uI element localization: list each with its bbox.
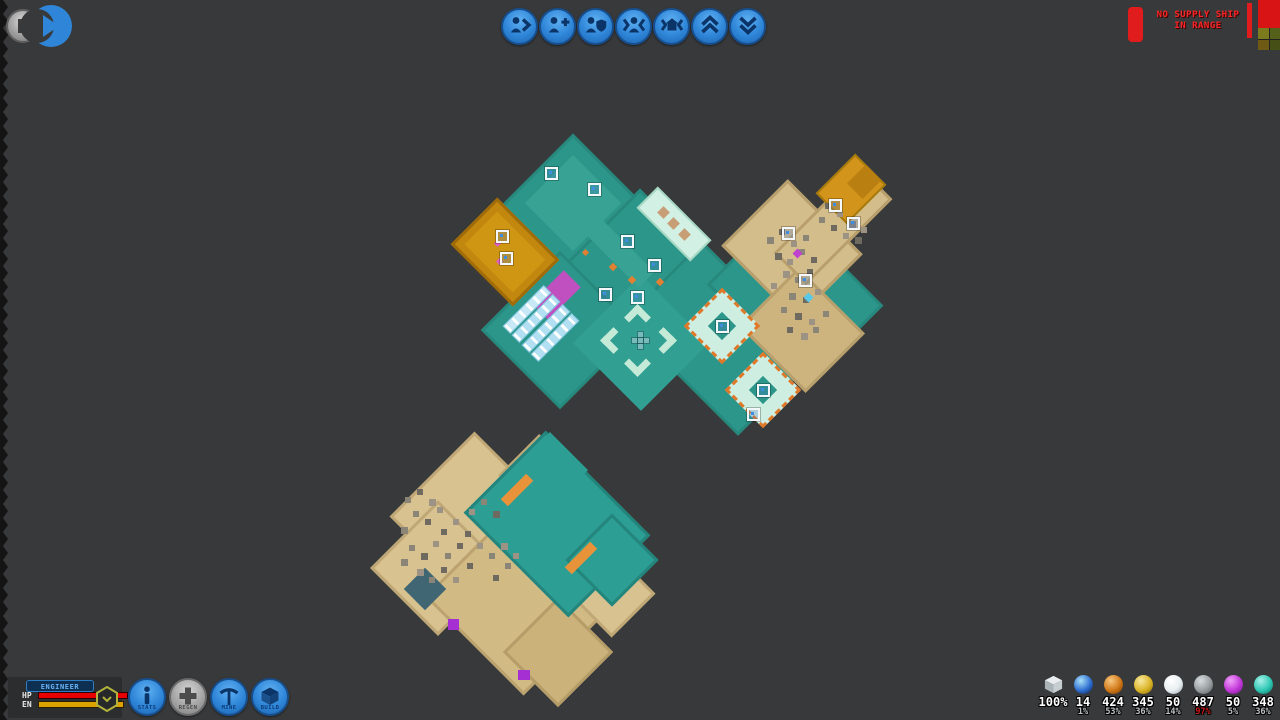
orb-icon	[1254, 675, 1273, 694]
resource-item[interactable]: 48797%	[1188, 674, 1218, 717]
rock-speckle	[437, 507, 443, 513]
resource-item[interactable]: 42453%	[1098, 674, 1128, 717]
layer-down-button[interactable]	[729, 8, 766, 45]
rock-speckle	[401, 559, 408, 566]
rock-speckle	[787, 327, 793, 333]
mine-button[interactable]: MINE	[210, 678, 248, 716]
orb-icon	[1074, 675, 1093, 694]
action-button-label: REGEN	[171, 705, 205, 711]
game-screen: NO SUPPLY SHIP IN RANGE ENGINEER HP EN S…	[0, 0, 1280, 720]
rock-speckle	[433, 541, 439, 547]
action-button-label: MINE	[212, 705, 246, 711]
guard-unit-button[interactable]	[577, 8, 614, 45]
action-button-label: STATS	[130, 705, 164, 711]
resource-percent: 36%	[1135, 708, 1150, 717]
resource-percent: 53%	[1105, 708, 1120, 717]
rock-speckle	[781, 307, 787, 313]
rock-speckle	[819, 217, 825, 223]
rock-speckle	[409, 545, 415, 551]
map-item-marker[interactable]	[500, 252, 513, 265]
rock-speckle	[501, 543, 508, 550]
rock-speckle	[467, 563, 473, 569]
rock-speckle	[425, 519, 431, 525]
rock-speckle	[465, 531, 471, 537]
hp-label: HP	[22, 692, 32, 700]
resource-item[interactable]: 34536%	[1128, 674, 1158, 717]
map-item-marker[interactable]	[782, 227, 795, 240]
resource-percent: 97%	[1195, 708, 1210, 717]
focus-home-button[interactable]	[653, 8, 690, 45]
map-cursor	[644, 338, 649, 343]
rock-speckle	[513, 553, 519, 559]
resource-percent: 36%	[1255, 708, 1270, 717]
next-unit-button[interactable]	[501, 8, 538, 45]
orb-icon	[1224, 675, 1243, 694]
world-map[interactable]	[0, 0, 1280, 720]
rock-speckle	[493, 511, 500, 518]
focus-unit-button[interactable]	[615, 8, 652, 45]
rock-speckle	[477, 543, 483, 549]
rock-speckle	[489, 553, 495, 559]
add-unit-button[interactable]	[539, 8, 576, 45]
rock-speckle	[429, 499, 436, 506]
rock-speckle	[815, 289, 821, 295]
rock-speckle	[413, 511, 419, 517]
corner-gauge-grid	[1258, 28, 1280, 50]
map-item-marker[interactable]	[747, 408, 760, 421]
map-item-marker[interactable]	[588, 183, 601, 196]
rock-speckle	[795, 313, 802, 320]
rock-speckle	[809, 319, 815, 325]
map-item-marker[interactable]	[716, 320, 729, 333]
map-cursor	[632, 338, 637, 343]
map-item-marker[interactable]	[799, 274, 812, 287]
rock-speckle	[401, 527, 408, 534]
rock-speckle	[481, 499, 487, 505]
rock-speckle	[417, 569, 424, 576]
resource-item[interactable]: 505%	[1218, 674, 1248, 717]
rock-speckle	[803, 235, 809, 241]
warning-line2: IN RANGE	[1146, 21, 1250, 32]
stats-button[interactable]: STATS	[128, 678, 166, 716]
en-label: EN	[22, 701, 32, 709]
resource-bar: 100%141%42453%34536%5014%48797%505%34836…	[1038, 674, 1278, 717]
map-item-marker[interactable]	[829, 199, 842, 212]
warning-line1: NO SUPPLY SHIP	[1146, 10, 1250, 21]
map-item-marker[interactable]	[545, 167, 558, 180]
map-item-marker[interactable]	[757, 384, 770, 397]
rock-speckle	[831, 225, 837, 231]
rock-speckle	[453, 519, 459, 525]
map-item-marker[interactable]	[847, 217, 860, 230]
map-item-marker[interactable]	[496, 230, 509, 243]
map-structure	[448, 619, 459, 630]
rock-speckle	[811, 257, 817, 263]
rock-speckle	[767, 237, 774, 244]
rock-speckle	[823, 311, 829, 317]
screen-edge-decoration	[0, 0, 10, 720]
supply-warning: NO SUPPLY SHIP IN RANGE	[1146, 10, 1250, 32]
resource-percent: 14%	[1165, 708, 1180, 717]
resource-percent: 1%	[1078, 708, 1088, 717]
action-button-bar: STATSREGENMINEBUILD	[128, 678, 289, 716]
rock-speckle	[441, 529, 447, 535]
rock-speckle	[445, 553, 451, 559]
orb-icon	[1194, 675, 1213, 694]
rock-speckle	[791, 241, 797, 247]
corner-gauge-block	[1258, 0, 1280, 28]
resource-count: 100%	[1039, 696, 1068, 708]
rock-speckle	[493, 575, 499, 581]
resource-item[interactable]: 5014%	[1158, 674, 1188, 717]
layer-up-button[interactable]	[691, 8, 728, 45]
map-cursor	[638, 332, 643, 337]
rock-speckle	[405, 497, 411, 503]
rock-speckle	[775, 253, 782, 260]
corner-gauge-bar	[1247, 3, 1252, 38]
rock-speckle	[789, 293, 796, 300]
rock-speckle	[801, 333, 808, 340]
map-item-marker[interactable]	[648, 259, 661, 272]
rock-speckle	[453, 577, 459, 583]
rock-speckle	[771, 283, 777, 289]
map-cursor	[638, 338, 643, 343]
rock-speckle	[861, 227, 867, 233]
build-button[interactable]: BUILD	[251, 678, 289, 716]
rock-speckle	[783, 271, 790, 278]
resource-percent: 5%	[1228, 708, 1238, 717]
map-item-marker[interactable]	[599, 288, 612, 301]
cube-icon	[1043, 674, 1064, 695]
play-button[interactable]	[30, 5, 72, 47]
action-button-label: BUILD	[253, 705, 287, 711]
top-command-bar	[501, 8, 766, 45]
orb-icon	[1164, 675, 1183, 694]
map-structure	[518, 670, 530, 680]
rock-speckle	[441, 567, 447, 573]
rock-speckle	[429, 577, 435, 583]
rock-speckle	[855, 237, 862, 244]
rock-speckle	[417, 489, 423, 495]
hexagon-toggle-icon[interactable]	[95, 686, 119, 712]
map-cursor	[638, 344, 643, 349]
rock-speckle	[787, 259, 793, 265]
rock-speckle	[457, 543, 463, 549]
supply-ship-icon	[1128, 7, 1143, 42]
map-item-marker[interactable]	[621, 235, 634, 248]
rock-speckle	[505, 563, 511, 569]
map-item-marker[interactable]	[631, 291, 644, 304]
rock-speckle	[843, 233, 849, 239]
regen-button[interactable]: REGEN	[169, 678, 207, 716]
rock-speckle	[469, 509, 475, 515]
orb-icon	[1104, 675, 1123, 694]
rock-speckle	[813, 327, 819, 333]
orb-icon	[1134, 675, 1153, 694]
resource-item[interactable]: 141%	[1068, 674, 1098, 717]
resource-item[interactable]: 100%	[1038, 674, 1068, 717]
rock-speckle	[421, 553, 428, 560]
character-name-badge: ENGINEER	[26, 680, 94, 692]
resource-item[interactable]: 34836%	[1248, 674, 1278, 717]
